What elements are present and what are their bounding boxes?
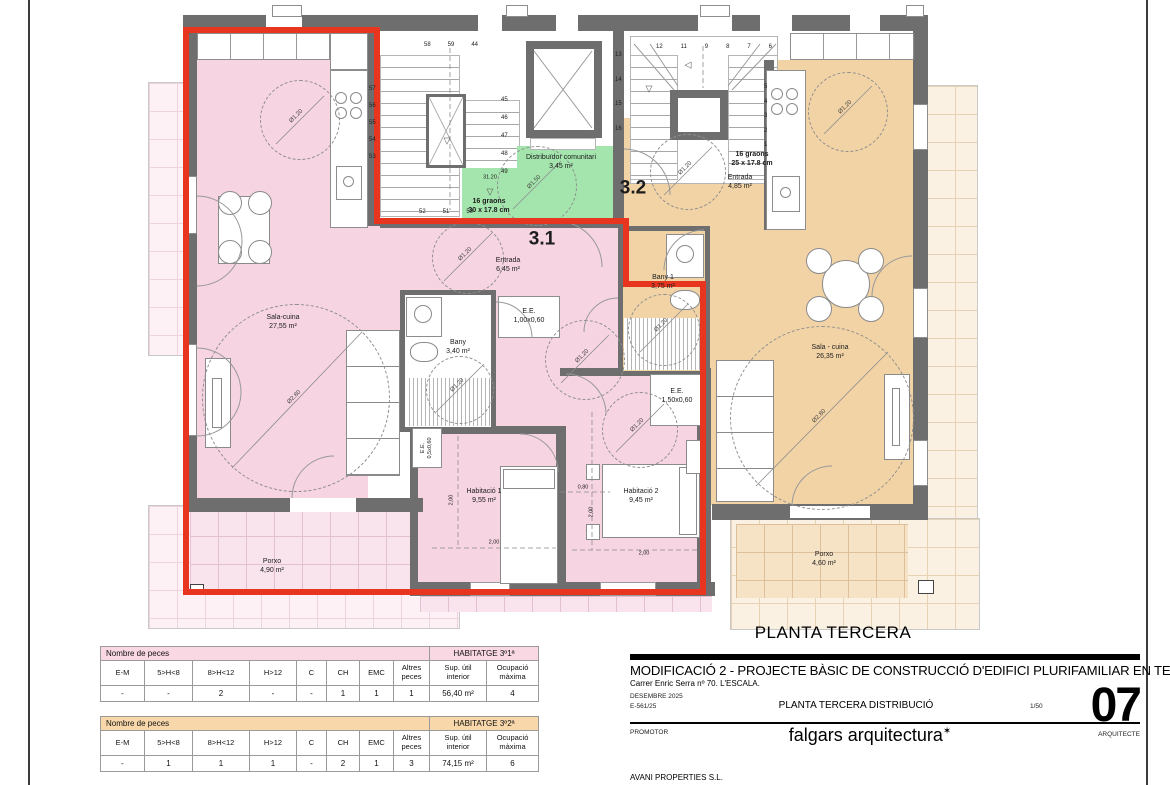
wall-under-stairs	[380, 220, 626, 228]
table-cell: CH	[327, 661, 360, 686]
dining-chair	[806, 296, 832, 322]
table-cell: 2	[193, 686, 250, 702]
window	[913, 288, 928, 338]
turning-circle-120	[426, 356, 494, 424]
label-level-3120: 31.20	[483, 174, 497, 181]
stair-step-number: 44	[471, 42, 478, 48]
stair-direction-marker-icon: ▽	[646, 84, 653, 95]
room-label-sala-cuina-32: Sala - cuina 26,35 m²	[812, 343, 849, 361]
window	[266, 15, 302, 31]
table-habitatge-label: HABITATGE 3º2ª	[430, 717, 539, 731]
window	[850, 15, 880, 31]
stair-step-number: 12	[656, 44, 663, 50]
label-graons-left: 16 graons 30 x 17.8 cm	[468, 197, 509, 215]
bany31-sink	[414, 305, 432, 323]
stair-direction-marker-icon: ◁	[685, 60, 692, 71]
stove-burner	[335, 92, 347, 104]
table-section-label: Nombre de peces	[101, 647, 430, 661]
stove-burner	[786, 88, 798, 100]
stair-step-number: 15	[615, 101, 622, 107]
table-cell: 8>H<12	[193, 731, 250, 756]
stair-step-number: 3	[764, 113, 767, 119]
room-label-distribuidor: Distribuïdor comunitari 3,45 m²	[526, 153, 596, 171]
window	[183, 344, 197, 436]
stair-step-number: 54	[369, 137, 376, 143]
room-label-porxo-31: Porxo 4,90 m²	[260, 557, 284, 575]
label-graons-right: 16 graons 25 x 17.8 cm	[731, 150, 772, 168]
terrace-right	[926, 85, 978, 519]
promotor-name: AVANI PROPERTIES S.L.	[630, 773, 723, 782]
terrace-pillar	[918, 580, 934, 594]
stove-burner	[350, 107, 362, 119]
table-cell: -	[297, 756, 327, 772]
stair-step-number: 49	[501, 169, 508, 175]
dim-label: 0,80	[578, 484, 589, 491]
turning-circle-120	[808, 72, 888, 152]
turning-circle-120	[260, 80, 340, 160]
table-cell: Ocupació màxima	[487, 731, 539, 756]
dining-chair	[858, 296, 884, 322]
table-header-row: E-M5>H<88>H<12H>12CCHEMCAltres pecesSup.…	[101, 731, 539, 756]
dining-chair	[218, 191, 242, 215]
studio-wordmark: falgars arquitectura	[789, 725, 943, 745]
stair-direction-marker-icon: ▽	[444, 136, 451, 147]
closet-hab2	[686, 440, 704, 474]
table-cell: 1	[360, 686, 394, 702]
table-cell: EMC	[360, 731, 394, 756]
room-label-bany-31: Bany 3,40 m²	[446, 338, 470, 356]
table-cell: H>12	[250, 661, 297, 686]
stair-right-numbers-top: 12119876	[656, 44, 772, 50]
stair-step-number: 2	[764, 128, 767, 134]
terrace-pillar	[190, 584, 204, 594]
stair-step-number: 52	[419, 209, 426, 215]
table-band-row: Nombre de peces HABITATGE 3º1ª	[101, 647, 539, 661]
stair-step-number: 56	[369, 103, 376, 109]
facade-tab	[700, 5, 730, 17]
stair-left-numbers-bottom: 525150	[419, 209, 473, 215]
table-cell: -	[145, 686, 193, 702]
table-cell: 1	[193, 756, 250, 772]
stove-burner	[786, 103, 798, 115]
table-cell: -	[101, 686, 145, 702]
dim-label: 2,00	[448, 495, 455, 506]
table-cell: Sup. útil interior	[430, 661, 487, 686]
stair-step-number: 59	[448, 42, 455, 48]
service-shaft	[426, 94, 466, 168]
stair-right-numbers-west: 13141516	[615, 52, 629, 132]
stair-step-number: 1	[764, 142, 767, 148]
table-value-row: --2--11156,40 m²4	[101, 686, 539, 702]
bany31-toilet	[410, 342, 438, 362]
stair-step-number: 50	[466, 209, 473, 215]
window	[760, 15, 792, 31]
window	[913, 104, 928, 150]
table-band-row: Nombre de peces HABITATGE 3º2ª	[101, 717, 539, 731]
date-and-reference: DESEMBRE 2025 E-561/25	[630, 692, 683, 712]
bed-hab2-pillow	[679, 467, 697, 535]
stair-step-number: 4	[764, 99, 767, 105]
bedroom-window	[470, 582, 510, 596]
nightstand	[586, 464, 600, 480]
promotor-label: PROMOTOR	[630, 728, 668, 738]
wall-right	[913, 31, 928, 511]
room-label-bany-1-32: Bany 1 3,75 m²	[651, 273, 675, 291]
drawing-sheet: { "plan": { "heading": "PLANTA TERCERA",…	[0, 0, 1170, 785]
arquitecte-label: ARQUITECTE	[1098, 730, 1140, 740]
stair-step-number: 14	[615, 77, 622, 83]
terrace-door-opening	[290, 498, 356, 512]
table-cell: 3	[394, 756, 430, 772]
stair-step-number: 57	[369, 86, 376, 92]
table-cell: 1	[327, 686, 360, 702]
stair-right-numbers-east: 54321	[764, 84, 776, 148]
table-cell: E-M	[101, 731, 145, 756]
stair-left-numbers-west: 5756555453	[369, 86, 385, 160]
table-cell: 1	[394, 686, 430, 702]
table-cell: Altres peces	[394, 661, 430, 686]
table-cell: -	[297, 686, 327, 702]
dining-chair	[248, 240, 272, 264]
stair-step-number: 5	[764, 84, 767, 90]
title-block-top-bar	[630, 654, 1140, 660]
table-cell: C	[297, 661, 327, 686]
dim-label: 2,00	[639, 550, 650, 557]
room-label-sala-cuina-31: Sala-cuina 27,55 m²	[266, 313, 299, 331]
title-block: MODIFICACIÓ 2 - PROJECTE BÀSIC DE CONSTR…	[630, 646, 1140, 785]
nightstand	[586, 524, 600, 540]
table-cell: 56,40 m²	[430, 686, 487, 702]
level-marker-icon: ▽	[487, 187, 494, 198]
window	[183, 176, 197, 234]
dining-chair	[858, 248, 884, 274]
stair-step-number: 7	[747, 44, 750, 50]
stair-step-number: 13	[615, 52, 622, 58]
table-cell: 1	[145, 756, 193, 772]
table-cell: 2	[327, 756, 360, 772]
room-label-habitacio-1: Habitació 1 9,55 m²	[466, 487, 501, 505]
stair-right-core-void	[678, 98, 720, 132]
kitchen32-sink-bowl	[780, 187, 791, 198]
table-cell: -	[250, 686, 297, 702]
falgars-star-icon: ✶	[943, 726, 951, 737]
turning-circle-120	[628, 294, 700, 366]
label-ee-150: E.E. 1,50x0,60	[662, 387, 693, 405]
room-label-porxo-32: Porxo 4,60 m²	[812, 550, 836, 568]
stair-step-number: 53	[369, 154, 376, 160]
dining-chair	[218, 240, 242, 264]
porxo-31-tiles	[190, 508, 418, 590]
kitchen31-corner-cabinet	[330, 33, 368, 70]
dim-label: 2,00	[489, 539, 500, 546]
title-block-divider	[630, 722, 1140, 724]
dining-chair	[806, 248, 832, 274]
kitchen31-sink-bowl	[343, 176, 354, 187]
stair-step-number: 48	[501, 151, 508, 157]
label-ee-050: E.E. 0,5x0,60	[420, 437, 434, 458]
table-section-label: Nombre de peces	[101, 717, 430, 731]
table-cell: 4	[487, 686, 539, 702]
stair-left-numbers-top: 585944	[424, 42, 478, 48]
stair-step-number: 8	[726, 44, 729, 50]
stair-step-number: 51	[443, 209, 450, 215]
dining-chair	[248, 191, 272, 215]
stair-step-number: 47	[501, 133, 508, 139]
table-cell: 8>H<12	[193, 661, 250, 686]
room-label-entrada-32: Entrada 4,85 m²	[728, 173, 753, 191]
facade-tab	[906, 5, 924, 17]
table-header-row: E-M5>H<88>H<12H>12CCHEMCAltres pecesSup.…	[101, 661, 539, 686]
stair-step-number: 11	[681, 44, 687, 50]
facade-tab	[506, 5, 528, 17]
table-cell: -	[101, 756, 145, 772]
table-cell: CH	[327, 731, 360, 756]
table-cell: Ocupació màxima	[487, 661, 539, 686]
project-address: Carrer Enric Serra nº 70. L'ESCALA.	[630, 679, 760, 688]
facade-tab	[272, 5, 302, 17]
stair-step-number: 45	[501, 97, 508, 103]
sheet-scale: 1/50	[1030, 702, 1043, 712]
elevator-cab	[534, 49, 594, 130]
plan-heading: PLANTA TERCERA	[755, 623, 912, 643]
room-label-habitacio-2: Habitació 2 9,45 m²	[623, 487, 658, 505]
stair-step-number: 9	[705, 44, 708, 50]
stove-burner	[350, 92, 362, 104]
stair-step-number: 16	[615, 126, 622, 132]
table-cell: H>12	[250, 731, 297, 756]
table-cell: EMC	[360, 661, 394, 686]
window	[698, 15, 732, 31]
table-cell: 74,15 m²	[430, 756, 487, 772]
bany32-sink	[676, 245, 694, 263]
window	[478, 15, 502, 31]
stair-step-number: 58	[424, 42, 431, 48]
table-cell: 5>H<8	[145, 661, 193, 686]
dim-label: 2,00	[588, 507, 595, 518]
table-cell: 1	[250, 756, 297, 772]
unit-label-32: 3.2	[620, 177, 646, 202]
porxo-31-tiles-south	[420, 596, 712, 612]
kitchen31-cabinets	[197, 33, 330, 60]
table-cell: 5>H<8	[145, 731, 193, 756]
project-title: MODIFICACIÓ 2 - PROJECTE BÀSIC DE CONSTR…	[630, 663, 1170, 678]
table-habitatge-label: HABITATGE 3º1ª	[430, 647, 539, 661]
bedroom-window	[600, 582, 656, 596]
table-cell: E-M	[101, 661, 145, 686]
table-habitatge-3-1: Nombre de peces HABITATGE 3º1ª E-M5>H<88…	[100, 646, 539, 702]
studio-name: falgars arquitectura✶	[789, 725, 951, 746]
sheet-title: PLANTA TERCERA DISTRIBUCIÓ	[779, 700, 934, 711]
window	[556, 15, 578, 31]
stair-step-number: 6	[769, 44, 772, 50]
window	[913, 440, 928, 486]
stair-step-number: 55	[369, 120, 376, 126]
table-cell: 6	[487, 756, 539, 772]
table-cell: 1	[360, 756, 394, 772]
room-label-entrada-31: Entrada 6,45 m²	[496, 256, 521, 274]
table-value-row: -111-21374,15 m²6	[101, 756, 539, 772]
stair-left-numbers-east: 4546474849	[501, 97, 517, 175]
table-habitatge-3-2: Nombre de peces HABITATGE 3º2ª E-M5>H<88…	[100, 716, 539, 772]
bed-hab1-pillow	[503, 469, 555, 489]
table-cell: Sup. útil interior	[430, 731, 487, 756]
label-ee-100: E.E. 1,00x0,60	[514, 307, 545, 325]
stair-step-number: 46	[501, 115, 508, 121]
table-cell: C	[297, 731, 327, 756]
kitchen32-cabinets	[790, 33, 914, 60]
unit-label-31: 3.1	[529, 228, 555, 253]
table-cell: Altres peces	[394, 731, 430, 756]
